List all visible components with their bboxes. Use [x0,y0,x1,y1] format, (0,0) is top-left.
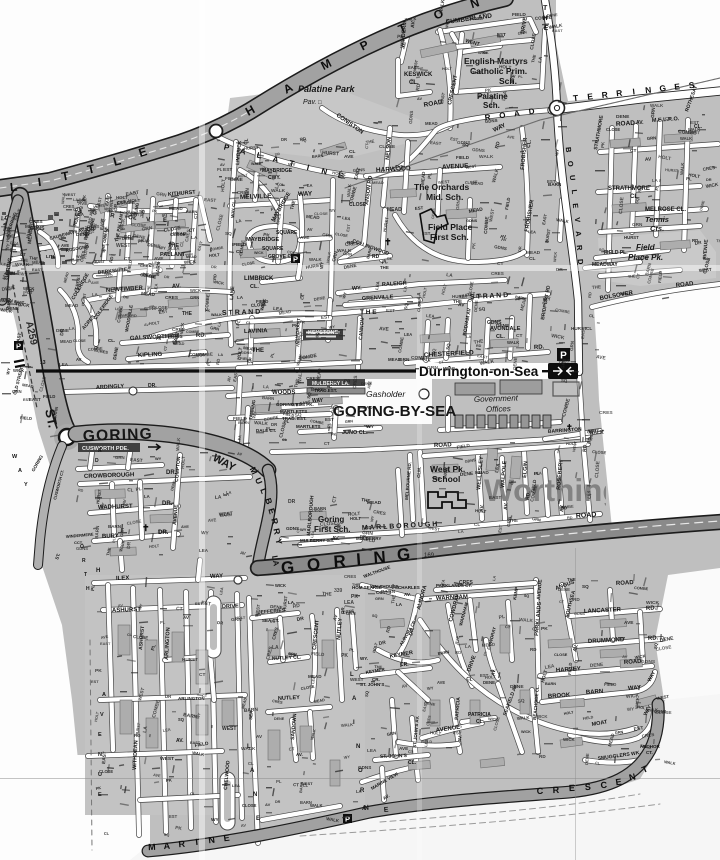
svg-text:GRN: GRN [190,295,199,300]
svg-text:RD: RD [28,287,35,293]
svg-text:CT: CT [516,333,523,339]
svg-text:ARLINGTON: ARLINGTON [178,696,205,701]
svg-text:WALK: WALK [271,188,286,194]
svg-text:LITL: LITL [46,254,56,259]
svg-text:CL.: CL. [476,719,485,725]
svg-text:LEA: LEA [115,307,123,312]
svg-text:CL: CL [127,487,134,494]
svg-text:CL: CL [248,761,254,766]
svg-text:LEA: LEA [367,748,377,753]
svg-text:CT: CT [630,148,637,154]
svg-text:CL: CL [243,138,250,145]
svg-text:CL: CL [586,326,592,331]
svg-text:A: A [352,696,357,702]
svg-text:ROAD: ROAD [624,659,643,666]
svg-text:LA: LA [191,235,198,241]
svg-text:THE: THE [374,664,383,670]
svg-text:MEAD: MEAD [169,206,183,211]
svg-text:THE: THE [158,529,168,535]
svg-text:Tennis: Tennis [645,215,669,224]
svg-text:E: E [163,218,167,224]
svg-text:WY: WY [155,456,162,461]
svg-text:O: O [566,160,575,167]
svg-text:LA: LA [235,218,242,224]
svg-text:LA: LA [270,555,281,567]
svg-text:L: L [9,180,18,195]
svg-text:CT: CT [293,782,300,788]
svg-text:RD.: RD. [648,635,659,642]
svg-text:CT: CT [331,410,337,414]
svg-text:Field Place: Field Place [428,222,473,232]
svg-text:BARN: BARN [381,589,396,595]
svg-text:CLOSE: CLOSE [379,144,395,149]
svg-text:PL: PL [217,167,223,172]
svg-text:GRN: GRN [569,341,575,351]
svg-text:R: R [616,88,623,99]
svg-text:RD: RD [215,358,221,365]
svg-text:EST: EST [480,673,489,678]
svg-text:DENE: DENE [584,753,590,765]
svg-text:HOLT: HOLT [116,195,128,200]
svg-text:E: E [571,203,580,209]
svg-text:GRN: GRN [115,455,125,460]
svg-text:E: E [98,732,102,738]
svg-text:EST: EST [415,205,424,211]
svg-text:WALK: WALK [650,103,664,108]
svg-text:THE: THE [567,577,576,582]
svg-text:CL.: CL. [408,760,417,766]
svg-text:AV.: AV. [172,283,182,290]
svg-text:DENE: DENE [312,508,323,513]
svg-text:ILEX: ILEX [116,576,130,582]
svg-text:CL: CL [474,522,480,527]
svg-text:EAST: EAST [204,197,217,203]
svg-text:CT: CT [193,213,199,220]
svg-text:PK: PK [341,172,347,179]
svg-text:THE: THE [592,284,602,290]
svg-text:CRES: CRES [344,574,356,579]
svg-text:GDNS: GDNS [76,546,88,551]
svg-text:EST: EST [422,231,431,236]
svg-text:GRN: GRN [375,596,384,601]
svg-text:Palatine Park: Palatine Park [298,84,356,94]
svg-text:CT: CT [288,746,295,752]
svg-text:Y: Y [24,482,28,488]
svg-text:GRN: GRN [615,730,624,735]
svg-text:WICK: WICK [478,50,489,55]
svg-text:LEA: LEA [426,313,435,319]
svg-text:DR: DR [217,620,223,626]
svg-text:HOLT: HOLT [209,252,221,258]
svg-text:DENE: DENE [590,662,605,669]
svg-text:A: A [18,468,22,474]
svg-text:FIELD: FIELD [456,155,470,160]
svg-text:CLOSE: CLOSE [606,127,620,132]
svg-text:FIELD: FIELD [512,12,526,18]
svg-text:MEAD: MEAD [186,255,197,259]
svg-text:WALK: WALK [251,162,262,166]
svg-text:WICK: WICK [563,737,576,742]
svg-text:PL: PL [276,779,282,784]
svg-text:COMBE: COMBE [117,200,136,206]
svg-text:PK: PK [95,785,101,791]
svg-text:SQ: SQ [431,348,437,355]
svg-text:BARN: BARN [548,182,562,187]
svg-text:WALK: WALK [309,257,323,262]
svg-text:THE: THE [716,238,720,244]
svg-text:GRN: GRN [455,200,461,210]
svg-text:AV.: AV. [296,752,303,757]
svg-text:D: D [95,458,99,464]
svg-text:LEA: LEA [5,269,10,277]
svg-text:ROAD: ROAD [576,512,597,520]
svg-text:AVE: AVE [208,517,217,523]
svg-text:PL: PL [284,419,290,424]
svg-text:THE: THE [395,164,404,169]
svg-text:CL: CL [589,313,595,318]
svg-text:CL: CL [127,633,133,637]
svg-text:AVE: AVE [181,524,189,529]
svg-text:GRN: GRN [6,298,12,309]
svg-text:LA: LA [402,286,408,293]
svg-text:HURST: HURST [571,326,587,331]
svg-text:EAST: EAST [29,397,41,402]
svg-text:HOLT: HOLT [430,730,442,736]
svg-text:AV: AV [307,227,313,232]
svg-text:WICK: WICK [444,18,450,29]
svg-text:RD: RD [372,254,380,260]
svg-text:CL.: CL. [250,284,259,290]
svg-text:EST: EST [91,679,99,684]
svg-text:LA: LA [458,529,464,534]
svg-text:RD.: RD. [534,344,545,351]
svg-text:AVE: AVE [437,680,445,685]
svg-text:V: V [100,712,104,718]
svg-text:LA: LA [465,644,472,649]
svg-text:GDNS: GDNS [641,659,656,665]
svg-text:S T R A N D: S T R A N D [222,309,261,317]
svg-text:N: N [253,792,257,798]
svg-text:GRN: GRN [12,389,22,394]
svg-text:AVE: AVE [91,280,99,285]
svg-text:H: H [96,568,100,574]
svg-text:DR: DR [517,246,522,252]
svg-text:CT: CT [559,600,565,604]
svg-text:MELROSE CL.: MELROSE CL. [645,207,686,213]
svg-text:W: W [12,454,18,460]
svg-text:RD: RD [692,238,698,243]
svg-text:MEAD: MEAD [359,405,373,410]
svg-text:CRES: CRES [491,271,504,276]
svg-text:KEYSTONE: KEYSTONE [308,330,338,336]
svg-text:Cts.: Cts. [650,224,664,233]
svg-text:MAYBRIDGE: MAYBRIDGE [262,168,293,174]
svg-text:CL: CL [529,256,536,262]
svg-text:DENE: DENE [558,587,570,592]
svg-text:S: S [585,782,592,792]
svg-text:AV.: AV. [457,735,463,742]
svg-text:WY: WY [201,530,210,536]
svg-text:WALK: WALK [15,262,30,268]
svg-text:EAST: EAST [408,65,420,70]
svg-text:SQ: SQ [561,378,568,383]
svg-text:LA: LA [466,334,471,339]
svg-text:CT: CT [665,116,671,121]
svg-text:DR: DR [288,499,296,505]
svg-text:DENE: DENE [510,684,524,690]
svg-text:AV.: AV. [176,738,184,744]
svg-text:AV: AV [622,654,628,659]
svg-text:THE: THE [432,476,441,481]
svg-text:SQ: SQ [517,698,525,705]
svg-text:FIELD: FIELD [225,176,239,181]
svg-text:WY: WY [288,162,296,167]
svg-text:CL.: CL. [108,338,115,343]
svg-text:FIELD PL.: FIELD PL. [604,250,628,256]
svg-text:THE: THE [20,257,29,263]
svg-text:SQUARE: SQUARE [276,230,298,236]
svg-text:WICK: WICK [190,288,201,293]
svg-text:DENE: DENE [460,471,475,478]
svg-text:LEA: LEA [153,283,159,292]
svg-text:SQ: SQ [139,209,146,214]
svg-text:DENE: DENE [616,114,630,120]
svg-text:DRIVE: DRIVE [222,603,239,610]
svg-text:AVE: AVE [624,620,634,626]
svg-text:PK: PK [541,626,548,632]
svg-text:RD: RD [567,515,573,520]
svg-text:AVE: AVE [507,135,515,140]
svg-text:WICK: WICK [521,730,531,734]
svg-text:LA: LA [69,326,75,331]
svg-text:GORING-BY-SEA: GORING-BY-SEA [333,403,456,420]
svg-text:RD: RD [530,647,537,652]
svg-text:N: N [356,744,360,750]
svg-text:WICK: WICK [646,600,660,606]
svg-text:PK: PK [351,594,358,600]
svg-text:CUSWORTH PDE.: CUSWORTH PDE. [82,446,129,452]
svg-text:EST: EST [453,730,462,736]
svg-text:GORING: GORING [83,426,154,445]
svg-text:LA: LA [356,789,362,794]
svg-text:AV: AV [76,357,82,362]
svg-text:LEA: LEA [404,332,412,337]
svg-text:CL: CL [466,676,474,683]
svg-text:CRES: CRES [29,219,43,225]
svg-text:PK: PK [300,320,306,324]
svg-text:PK: PK [471,242,477,249]
svg-text:BARN: BARN [311,387,325,392]
svg-text:EAST: EAST [489,495,501,500]
svg-text:HURST: HURST [182,657,198,662]
svg-text:SQ: SQ [582,584,589,589]
svg-text:CT: CT [199,672,205,678]
svg-text:DENE: DENE [547,12,559,18]
svg-text:WALK: WALK [507,340,519,345]
svg-text:AV: AV [265,802,271,807]
svg-text:PL: PL [326,422,331,428]
svg-text:WALK: WALK [680,136,692,141]
svg-text:AV: AV [240,550,246,556]
svg-text:CT: CT [74,287,81,294]
svg-text:AVE: AVE [154,256,164,262]
svg-text:LEA: LEA [534,470,542,476]
svg-text:CL: CL [349,149,355,155]
svg-text:GDNS: GDNS [457,140,470,145]
svg-text:COMBE: COMBE [186,330,200,334]
svg-text:WY: WY [211,817,220,823]
svg-text:A: A [98,448,102,454]
svg-text:RD: RD [573,597,580,602]
svg-text:LA: LA [85,278,92,285]
svg-text:DENE: DENE [274,717,285,721]
svg-text:DENE: DENE [473,300,479,312]
svg-text:THE: THE [509,518,518,523]
svg-text:MEAD: MEAD [620,291,632,296]
svg-text:RD: RD [539,754,546,759]
svg-text:13: 13 [40,360,46,366]
svg-text:N: N [645,85,652,96]
svg-text:RD: RD [131,313,137,318]
svg-text:DENE: DENE [361,381,372,386]
svg-text:O: O [499,111,506,121]
svg-text:RD: RD [561,505,567,511]
svg-text:SQ: SQ [372,614,378,618]
svg-text:DENE: DENE [113,287,124,291]
svg-text:LEA: LEA [232,783,240,788]
svg-text:PL: PL [90,585,96,592]
svg-text:WALK: WALK [479,154,494,160]
svg-text:WAY: WAY [298,190,313,198]
svg-text:MEAD: MEAD [372,180,384,185]
svg-text:CRES: CRES [599,410,613,416]
svg-text:THE: THE [352,583,360,587]
svg-text:AVE: AVE [399,746,408,751]
svg-text:RD: RD [587,292,592,298]
svg-text:CLM.: CLM. [416,467,422,478]
svg-text:WY: WY [427,685,434,691]
svg-text:MEAD: MEAD [60,339,72,344]
svg-text:CL: CL [247,359,253,364]
svg-text:EAST: EAST [100,641,111,646]
svg-text:Gasholder: Gasholder [366,389,406,399]
svg-text:MEAD: MEAD [471,181,483,186]
svg-text:MEAD: MEAD [526,250,541,256]
svg-text:GRN: GRN [343,251,352,257]
svg-text:AV: AV [500,234,507,239]
svg-text:BARN: BARN [545,682,556,686]
svg-text:DR: DR [331,379,337,384]
svg-text:MULBERRY GS.: MULBERRY GS. [300,538,334,543]
svg-text:PK: PK [95,668,102,674]
svg-text:CL: CL [179,240,185,247]
svg-text:MEAD: MEAD [173,231,187,236]
svg-text:PK: PK [259,166,266,172]
svg-text:WY: WY [291,402,299,408]
svg-text:SQ: SQ [524,594,529,598]
svg-text:WALK: WALK [341,722,354,728]
svg-text:WEST: WEST [160,756,174,762]
svg-text:DR: DR [275,800,281,804]
svg-text:AVE: AVE [300,235,310,241]
svg-text:LA: LA [396,602,403,607]
svg-text:EST: EST [325,417,334,422]
svg-text:MEAD: MEAD [387,207,402,213]
svg-text:EAST: EAST [32,267,43,272]
svg-text:Offices: Offices [486,404,511,414]
svg-text:169: 169 [424,553,435,559]
svg-text:A: A [362,806,367,812]
svg-text:E: E [256,816,260,822]
svg-text:AV.: AV. [636,120,644,126]
svg-text:PL: PL [270,206,277,212]
svg-text:CRES: CRES [140,263,151,268]
svg-text:GDNS: GDNS [286,526,299,531]
svg-text:CLOSE: CLOSE [554,652,568,657]
svg-text:DR: DR [211,264,217,269]
svg-text:GDNS: GDNS [353,167,366,173]
svg-text:GRN: GRN [650,107,656,118]
svg-text:EST: EST [169,814,178,819]
svg-text:BARN: BARN [108,524,121,529]
svg-text:□: □ [318,100,322,106]
svg-text:FIELD: FIELD [20,415,32,421]
svg-text:R: R [552,785,559,795]
svg-text:COMBE: COMBE [189,352,205,357]
svg-text:AV: AV [417,97,422,101]
svg-text:A: A [163,841,171,851]
svg-text:SQUARE: SQUARE [262,246,284,252]
svg-text:PL: PL [160,620,166,625]
svg-text:BARN: BARN [312,153,324,159]
svg-text:PL: PL [498,614,505,621]
svg-text:CLOSE: CLOSE [99,769,113,774]
svg-text:CL: CL [190,791,196,796]
svg-text:GRN: GRN [647,135,657,141]
svg-text:WICK: WICK [254,251,264,255]
svg-text:MEAD: MEAD [388,357,401,362]
svg-text:DR: DR [271,422,278,427]
svg-text:LEA: LEA [487,95,496,100]
svg-text:EST: EST [321,314,331,320]
svg-text:RD.: RD. [646,605,657,612]
svg-text:AVE: AVE [379,326,390,333]
svg-text:LA: LA [416,292,423,299]
svg-text:GDNS: GDNS [358,765,371,770]
svg-text:T: T [84,572,87,578]
svg-text:V: V [146,217,150,223]
svg-text:GRN: GRN [427,365,438,371]
svg-text:AV: AV [401,683,408,689]
svg-text:CT: CT [497,261,504,267]
svg-text:AV.: AV. [503,502,510,511]
svg-text:CLOSE: CLOSE [314,211,328,216]
svg-text:PL: PL [381,259,388,266]
svg-text:R: R [333,552,347,572]
svg-text:LA: LA [215,494,222,501]
svg-text:HOLT: HOLT [149,543,160,549]
svg-text:WEST: WEST [438,179,451,185]
svg-text:WEST: WEST [350,677,364,682]
svg-text:GRN: GRN [231,617,242,623]
svg-text:Field: Field [636,243,656,252]
svg-text:AV: AV [254,469,259,473]
svg-text:PL: PL [686,176,692,181]
svg-text:EST: EST [23,398,31,402]
svg-text:WAY: WAY [210,574,223,580]
svg-text:MEAD: MEAD [173,341,185,346]
svg-text:LA: LA [237,295,244,300]
